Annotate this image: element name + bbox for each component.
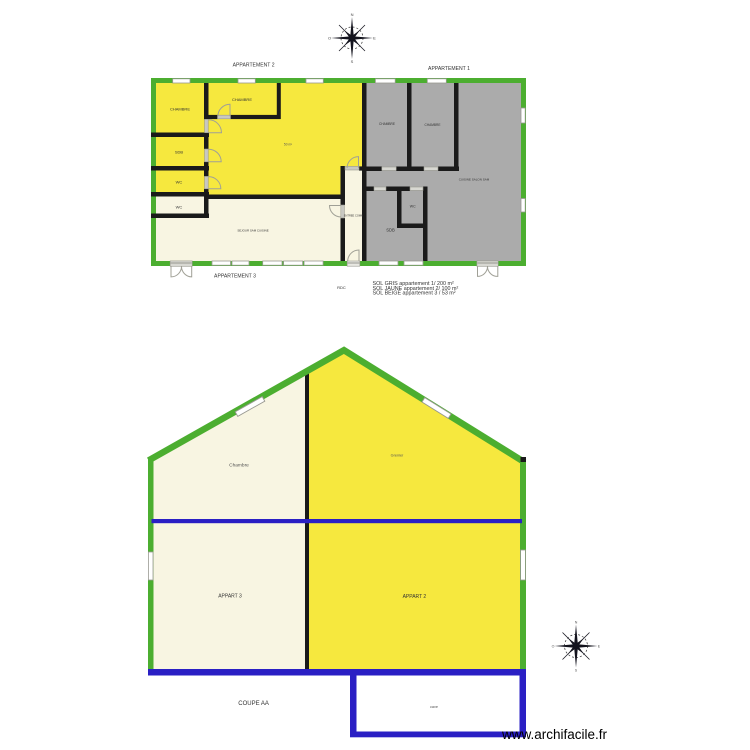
svg-text:COUPE AA: COUPE AA	[238, 701, 269, 707]
svg-text:SOL BEIGE appartement 3 / 53 m: SOL BEIGE appartement 3 / 53 m²	[373, 291, 456, 297]
svg-text:CUISINE SALON SAM: CUISINE SALON SAM	[459, 177, 490, 181]
svg-text:Chambre: Chambre	[229, 463, 249, 469]
svg-text:APPARTEMENT 1: APPARTEMENT 1	[428, 66, 470, 72]
svg-text:SDB: SDB	[175, 150, 184, 155]
svg-text:WC: WC	[176, 205, 183, 210]
svg-text:CHAMBRE: CHAMBRE	[232, 97, 252, 102]
svg-text:E: E	[373, 36, 376, 41]
svg-text:N: N	[351, 12, 354, 17]
svg-text:APPARTEMENT 3: APPARTEMENT 3	[214, 274, 256, 280]
svg-text:ENTREE COMM: ENTREE COMM	[344, 213, 363, 217]
svg-text:CHAMBRE: CHAMBRE	[170, 107, 190, 112]
svg-text:S: S	[575, 669, 578, 673]
svg-text:CHAMBRE: CHAMBRE	[425, 123, 441, 127]
svg-text:WC: WC	[176, 180, 183, 185]
svg-text:E: E	[598, 645, 601, 649]
svg-text:SDB: SDB	[386, 228, 395, 233]
svg-text:APPARTEMENT 2: APPARTEMENT 2	[233, 63, 275, 69]
svg-text:APPART 3: APPART 3	[218, 594, 242, 600]
svg-text:O: O	[328, 36, 331, 41]
svg-text:RDC: RDC	[337, 285, 346, 290]
svg-text:Grenier: Grenier	[391, 454, 404, 458]
svg-text:APPART 2: APPART 2	[403, 594, 427, 600]
svg-text:N: N	[575, 621, 578, 625]
svg-text:S: S	[351, 59, 354, 64]
svg-text:cave: cave	[430, 705, 438, 709]
svg-text:CHAMBRE: CHAMBRE	[379, 122, 395, 126]
svg-text:O: O	[552, 645, 555, 649]
svg-text:50 m²: 50 m²	[284, 143, 292, 147]
svg-text:WC: WC	[410, 205, 416, 209]
svg-text:SEJOUR SAM CUISINE: SEJOUR SAM CUISINE	[237, 229, 268, 233]
svg-text:www.archifacile.fr: www.archifacile.fr	[501, 727, 608, 742]
